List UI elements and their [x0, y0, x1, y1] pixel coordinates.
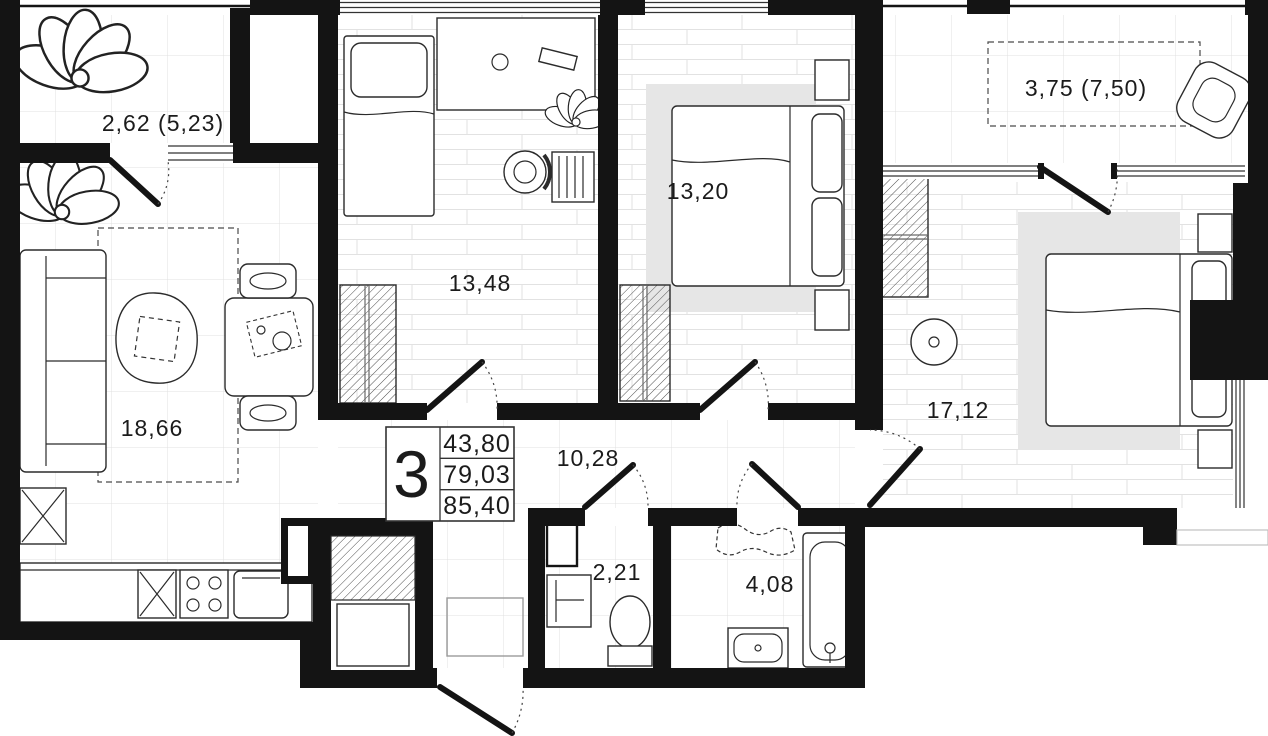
label-loggia-left: 2,62 (5,23): [102, 110, 224, 136]
dining-chair-top: [240, 264, 296, 298]
wardrobe-bedroom-1: [340, 285, 396, 403]
kitchen-sink: [138, 570, 176, 618]
nightstand-bedroom-2-top: [815, 60, 849, 100]
sofa: [20, 250, 106, 472]
nightstand-bedroom-3-top: [1198, 214, 1232, 252]
dining-chair-bottom: [240, 396, 296, 430]
legend-rooms-count: 3: [393, 437, 431, 511]
hallway-closet: [313, 518, 433, 688]
radiator-vanity: [552, 152, 594, 202]
beanbag-chair: [116, 293, 197, 383]
nightstand-bedroom-2-bottom: [815, 290, 849, 330]
label-bathroom: 4,08: [746, 571, 795, 597]
door-entry: [440, 687, 523, 733]
label-hallway: 10,28: [557, 445, 620, 471]
washing-machine: [20, 488, 66, 544]
fridge: [234, 571, 288, 618]
closet-storage-box: [337, 604, 409, 666]
legend-apartment-area: 79,03: [443, 461, 511, 489]
washbasin-wc: [547, 575, 591, 627]
ventilation-shaft: [281, 518, 315, 584]
dining-table: [225, 298, 313, 396]
boiler-wc: [547, 522, 577, 566]
label-living-room: 18,66: [121, 415, 184, 441]
window-bedroom-2: [645, 0, 768, 15]
neighbor-balcony-outline: [1177, 530, 1268, 545]
legend-box: 3 43,80 79,03 85,40: [386, 427, 514, 521]
label-wc: 2,21: [593, 559, 642, 585]
sink-bathroom: [728, 628, 788, 668]
window-bedroom-1: [340, 0, 600, 15]
label-bedroom-1: 13,48: [449, 270, 512, 296]
floor-plan-drawing: 3 43,80 79,03 85,40 2,62 (5,23) 13,48 13…: [0, 0, 1268, 736]
label-bedroom-3: 17,12: [927, 397, 990, 423]
floor-plan-page: 3 43,80 79,03 85,40 2,62 (5,23) 13,48 13…: [0, 0, 1268, 736]
toilet: [608, 596, 652, 666]
legend-total-area: 85,40: [443, 492, 511, 520]
closet-shelving-hatch: [331, 536, 415, 600]
wardrobe-bedroom-2: [620, 285, 670, 401]
pouf-bedroom-3: [911, 319, 957, 365]
window-living-loggia: [168, 143, 233, 163]
nightstand-bedroom-3-bottom: [1198, 430, 1232, 468]
window-bedroom-3-side: [1233, 380, 1248, 508]
window-bedroom-3-loggia-left: [883, 163, 1038, 179]
window-bedroom-3-loggia-right: [1117, 163, 1245, 179]
label-loggia-right: 3,75 (7,50): [1025, 75, 1147, 101]
stove: [180, 570, 228, 618]
bed-bedroom-1: [344, 36, 434, 216]
label-bedroom-2: 13,20: [667, 178, 730, 204]
legend-living-area: 43,80: [443, 430, 511, 458]
